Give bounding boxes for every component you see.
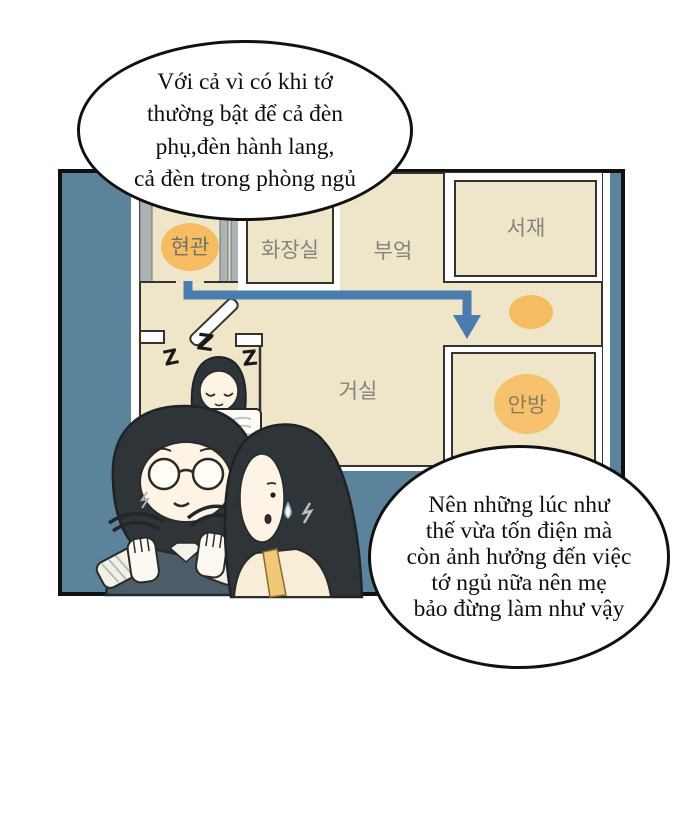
speech-line: Với cả vì có khi tớ bbox=[157, 66, 333, 99]
sleep-z: Z bbox=[241, 346, 259, 371]
speech-line: thế vừa tốn điện mà bbox=[426, 518, 612, 544]
daughter-eye bbox=[270, 492, 275, 497]
daughter-mouth bbox=[265, 515, 271, 524]
speech-line: cả đèn trong phòng ngủ bbox=[134, 163, 356, 196]
speech-line: phụ,đèn hành lang, bbox=[156, 131, 335, 164]
room-label-entrance: 현관 bbox=[171, 235, 210, 259]
speech-line: thường bật để cả đèn bbox=[147, 98, 343, 131]
daughter-eyebrow bbox=[267, 483, 276, 484]
speech-line: bảo đừng làm như vậy bbox=[414, 596, 625, 622]
speech-bubble-bottom: Nên những lúc như thế vừa tốn điện mà cò… bbox=[368, 445, 670, 669]
glasses-lens bbox=[149, 459, 179, 489]
room-label-study: 서재 bbox=[507, 216, 546, 240]
glasses-lens bbox=[193, 459, 223, 489]
room-label-bathroom: 화장실 bbox=[261, 238, 319, 262]
speech-line: còn ảnh hưởng đến việc bbox=[407, 544, 632, 570]
room-label-master-bedroom: 안방 bbox=[508, 393, 547, 417]
speech-line: Nên những lúc như bbox=[428, 492, 609, 518]
hallway-light-highlight bbox=[509, 295, 553, 329]
bedroom-wall bbox=[140, 331, 164, 343]
mother-hand bbox=[195, 530, 229, 578]
speech-bubble-top: Với cả vì có khi tớ thường bật để cả đèn… bbox=[77, 40, 413, 221]
speech-line: tớ ngủ nữa nên mẹ bbox=[431, 570, 606, 596]
mother-hand bbox=[126, 535, 160, 583]
daughter-face bbox=[240, 454, 284, 542]
room-study: 서재 bbox=[443, 173, 602, 283]
comic-page: 현관 화장실 부엌 서재 bbox=[0, 0, 690, 821]
bedroom-wall bbox=[236, 334, 262, 346]
room-label-living-room: 거실 bbox=[339, 379, 378, 403]
room-label-kitchen: 부엌 bbox=[374, 239, 413, 263]
